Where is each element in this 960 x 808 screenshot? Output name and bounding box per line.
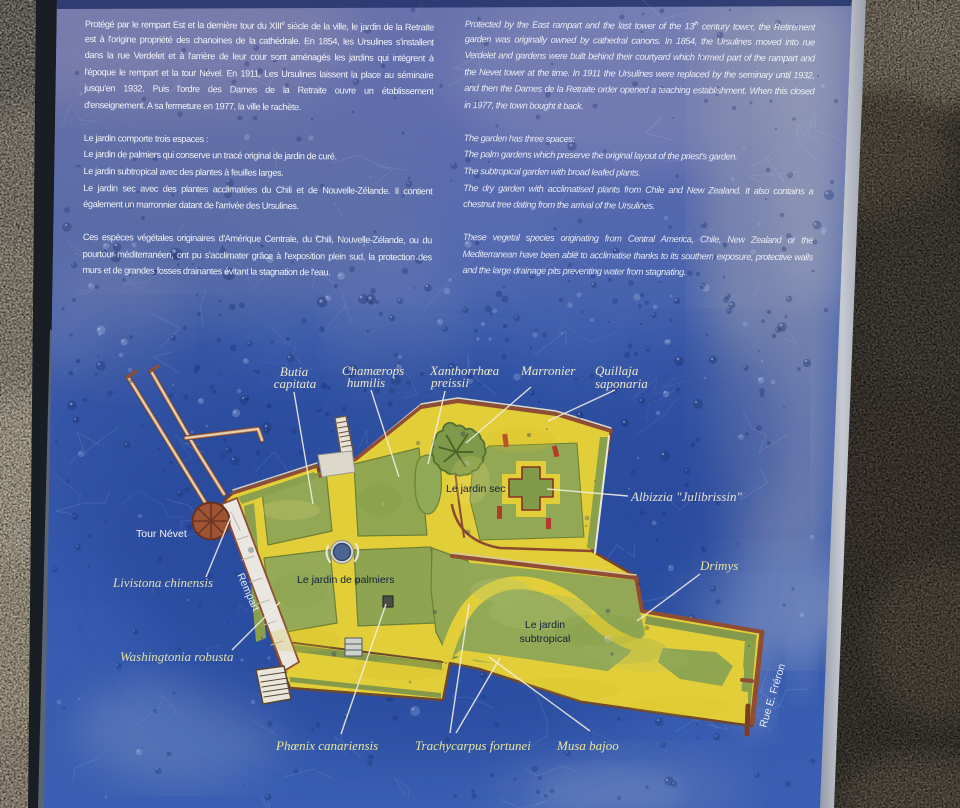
svg-text:Le jardin sec: Le jardin sec [446,483,506,495]
svg-text:Le jardin: Le jardin [525,619,565,631]
svg-text:Le jardin de palmiers: Le jardin de palmiers [297,574,394,586]
svg-text:Phœnix canariensis: Phœnix canariensis [275,738,378,753]
svg-text:humilis: humilis [347,375,385,390]
svg-text:Musa bajoo: Musa bajoo [556,738,619,753]
svg-text:subtropical: subtropical [520,633,571,645]
svg-text:saponaria: saponaria [595,376,648,391]
svg-text:Livistona chinensis: Livistona chinensis [112,575,213,590]
svg-text:Marronier: Marronier [520,363,576,378]
svg-text:Trachycarpus fortunei: Trachycarpus fortunei [415,738,531,753]
svg-text:Drimys: Drimys [699,558,738,573]
svg-text:Tour Névet: Tour Névet [136,528,187,540]
svg-text:Washingtonia robusta: Washingtonia robusta [120,649,234,664]
svg-text:Albizzia "Julibrissin": Albizzia "Julibrissin" [630,489,742,504]
svg-text:preissii: preissii [430,375,469,390]
svg-text:capitata: capitata [274,376,317,391]
